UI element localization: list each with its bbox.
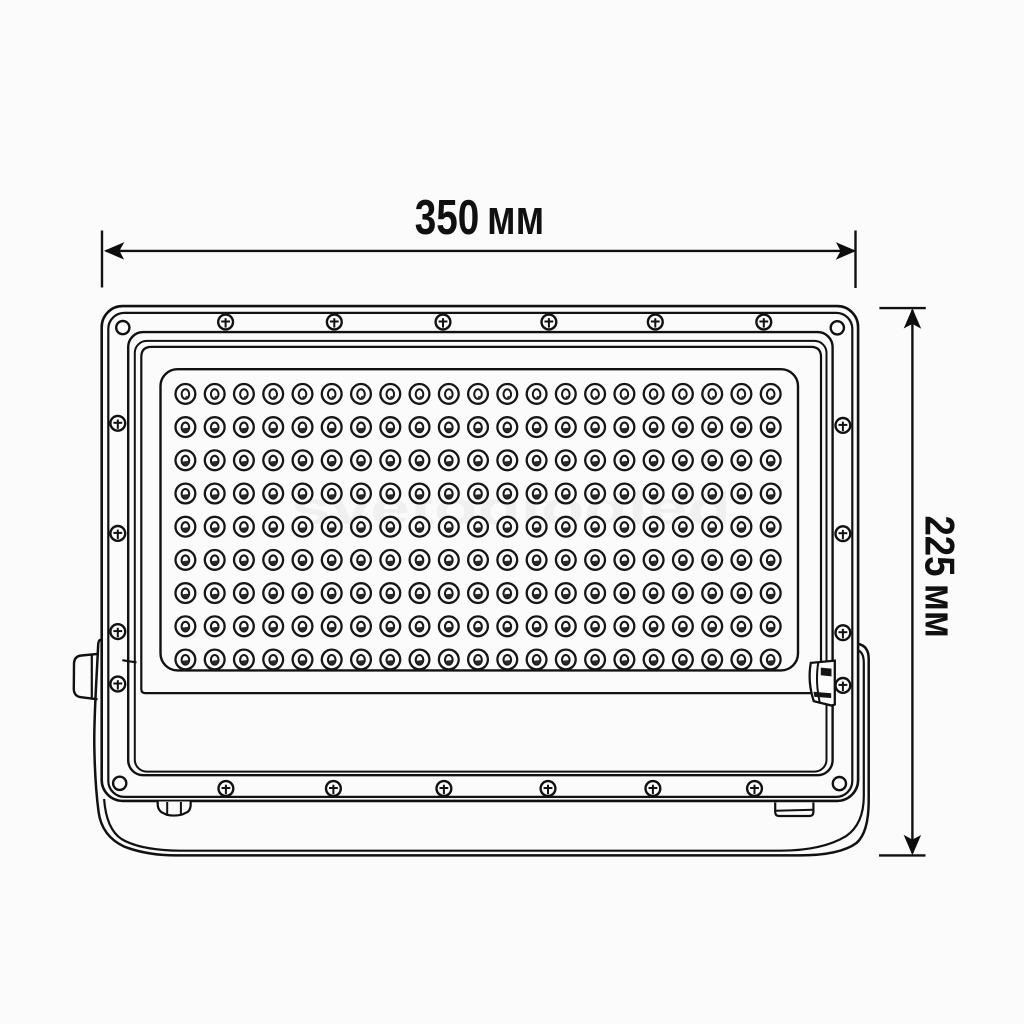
svg-text:350 мм: 350 мм bbox=[415, 191, 545, 245]
svg-text:225 мм: 225 мм bbox=[917, 515, 964, 638]
